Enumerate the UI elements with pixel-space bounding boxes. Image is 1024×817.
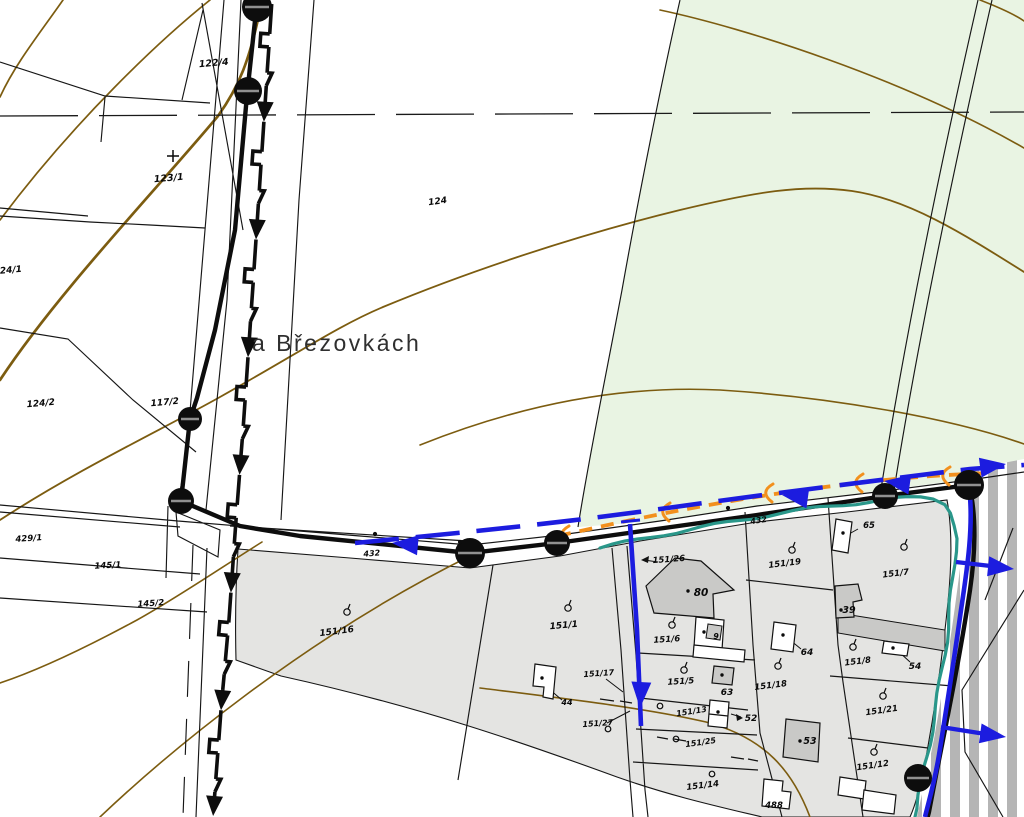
building-dot	[686, 589, 689, 592]
building-footprint	[771, 622, 796, 652]
building-footprint	[838, 777, 866, 799]
building-number-label: 53	[803, 736, 817, 747]
flow-direction-arrow	[233, 454, 250, 475]
parcel-label: 124/1	[0, 265, 22, 277]
building-dot	[540, 676, 543, 679]
building-dot	[702, 630, 705, 633]
flow-direction-arrow	[249, 219, 266, 240]
parcel-label: 429/1	[14, 533, 42, 545]
building-number-label: 64	[801, 648, 814, 658]
building-footprint	[862, 790, 896, 814]
parcel-label: 151/6	[653, 634, 680, 646]
cadastral-map-canvas: 122/4123/1124/1124/2117/2124429/1145/114…	[0, 0, 1024, 817]
building-dot	[720, 673, 723, 676]
parcel-label: 124	[428, 196, 448, 209]
building-number-label: 44	[560, 698, 573, 707]
cadastral-map-viewport[interactable]: 122/4123/1124/1124/2117/2124429/1145/114…	[0, 0, 1024, 817]
manhole-dot	[242, 0, 272, 22]
building-footprint	[832, 519, 852, 553]
building-dot	[781, 633, 784, 636]
building-number-label: 39	[842, 605, 856, 616]
building-number-label: 488	[764, 801, 783, 811]
contour-line	[0, 0, 63, 97]
parcel-label: 151/5	[667, 676, 694, 688]
parcel-label: 122/4	[198, 57, 229, 71]
water-branch-cap	[621, 520, 640, 522]
parcel-label: 123/1	[153, 172, 184, 186]
green-field-area	[578, 0, 1024, 527]
building-number-label: 63	[721, 688, 734, 698]
building-number-label: 9	[713, 632, 719, 641]
plus-mark	[167, 150, 179, 162]
flow-direction-arrow	[257, 101, 274, 122]
place-name-label: a Březovkách	[252, 330, 421, 356]
parcel-label: 117/2	[150, 397, 179, 409]
building-number-label: 65	[863, 521, 875, 531]
survey-dot	[373, 532, 377, 536]
parcel-label: 145/1	[94, 560, 121, 571]
building-dot	[891, 646, 894, 649]
dashed-parcel-line	[183, 545, 193, 817]
contour-line	[0, 0, 210, 220]
building-number-label: 52	[745, 714, 758, 724]
building-dot	[798, 739, 801, 742]
building-number-label: 54	[909, 662, 922, 672]
parcel-label: 145/2	[137, 598, 164, 610]
building-footprint	[882, 641, 909, 656]
road-number-label: 432	[362, 548, 381, 558]
contour-line	[0, 542, 262, 683]
parcel-label: 124/2	[26, 398, 55, 410]
building-dot	[841, 531, 844, 534]
flow-direction-arrow	[206, 795, 223, 816]
building-number-label: 80	[694, 587, 709, 599]
survey-dot	[726, 506, 730, 510]
survey-dot	[458, 540, 462, 544]
building-dot	[716, 710, 719, 713]
